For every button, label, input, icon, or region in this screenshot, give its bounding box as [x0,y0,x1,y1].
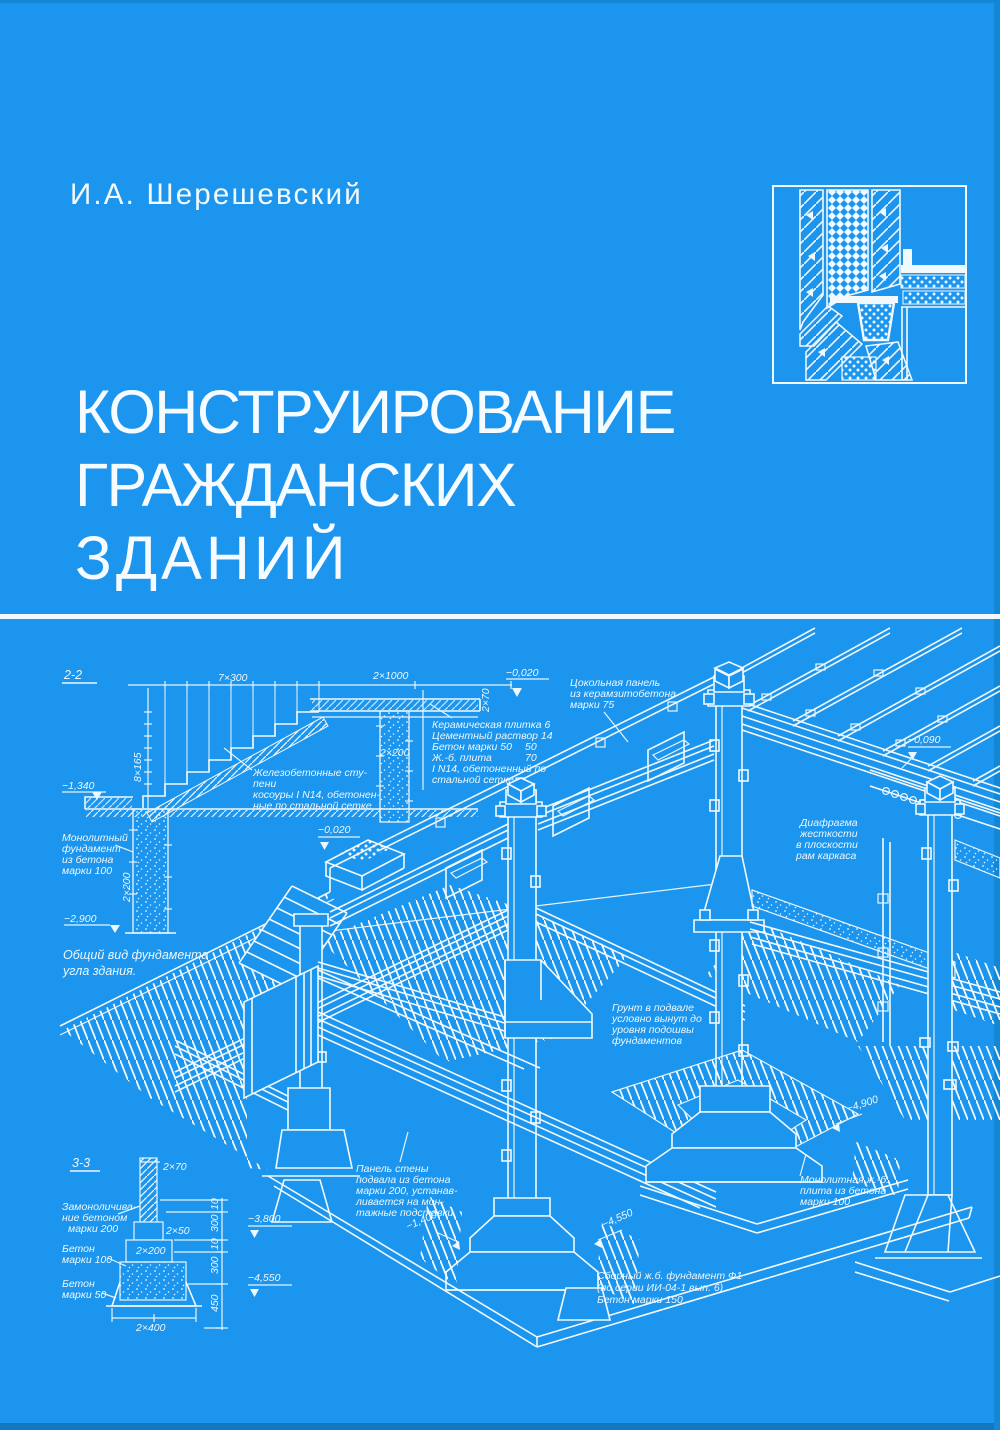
svg-text:Бетон марки 150: Бетон марки 150 [597,1294,683,1306]
svg-text:угла здания.: угла здания. [62,964,136,978]
svg-text:2×50: 2×50 [165,1225,190,1237]
svg-text:300: 300 [209,1256,221,1274]
svg-text:Сборный ж.б. фундамент Ф1: Сборный ж.б. фундамент Ф1 [597,1270,742,1282]
svg-text:Общий вид фундамента: Общий вид фундамента [63,948,208,962]
svg-text:300: 300 [209,1214,221,1232]
svg-text:И.А. Шерешевский: И.А. Шерешевский [70,178,363,211]
svg-text:8×165: 8×165 [132,752,144,782]
svg-text:−0,020: −0,020 [506,667,539,679]
svg-text:2×400: 2×400 [135,1322,166,1334]
svg-text:−0,020: −0,020 [318,824,351,836]
svg-text:2×70: 2×70 [162,1161,187,1173]
svg-text:стальной сетке: стальной сетке [432,774,514,786]
svg-text:марки 75: марки 75 [570,699,614,711]
svg-text:КОНСТРУИРОВАНИЕ: КОНСТРУИРОВАНИЕ [75,378,675,446]
svg-text:−3,800: −3,800 [248,1213,281,1225]
svg-text:2-2: 2-2 [63,668,82,682]
svg-text:марки 100: марки 100 [800,1196,850,1208]
svg-text:2×200: 2×200 [379,747,410,759]
svg-text:2×200: 2×200 [135,1245,166,1257]
svg-text:2×1000: 2×1000 [372,670,408,682]
svg-text:тажные подставки: тажные подставки [356,1207,454,1219]
svg-text:−1,340: −1,340 [62,780,95,792]
svg-text:3-3: 3-3 [72,1156,90,1170]
svg-text:−0,090: −0,090 [908,734,941,746]
svg-text:марки 100: марки 100 [62,1254,112,1266]
svg-text:2×200: 2×200 [121,872,133,903]
svg-text:7×300: 7×300 [218,672,248,684]
svg-text:10: 10 [209,1198,221,1210]
svg-text:марки 100: марки 100 [62,865,112,877]
svg-text:марки 50: марки 50 [62,1289,106,1301]
svg-text:ЗДАНИЙ: ЗДАНИЙ [75,523,350,592]
svg-text:марки 200: марки 200 [68,1223,118,1235]
svg-text:2×70: 2×70 [480,688,492,713]
svg-text:фундаментов: фундаментов [612,1035,682,1047]
svg-text:ГРАЖДАНСКИХ: ГРАЖДАНСКИХ [75,451,516,519]
svg-text:рам каркаса: рам каркаса [795,850,856,862]
svg-text:ные по стальной сетке: ные по стальной сетке [253,800,372,812]
svg-text:(по серии ИИ-04-1 вып. 6): (по серии ИИ-04-1 вып. 6) [597,1282,723,1294]
svg-text:450: 450 [209,1294,221,1312]
svg-text:−4,550: −4,550 [248,1272,281,1284]
svg-text:−2,900: −2,900 [64,913,97,925]
svg-text:10: 10 [209,1238,221,1250]
